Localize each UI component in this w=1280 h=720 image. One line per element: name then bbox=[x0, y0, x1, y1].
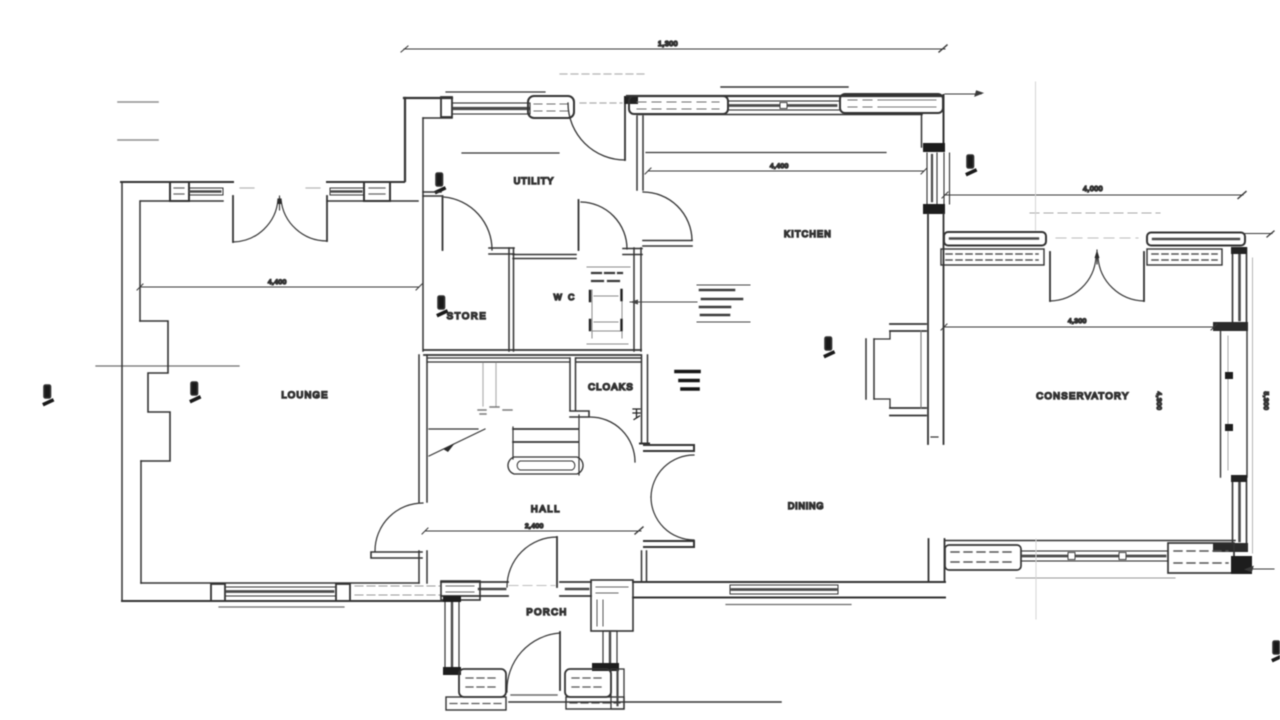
svg-text:DINING: DINING bbox=[788, 501, 824, 511]
svg-text:4,400: 4,400 bbox=[770, 163, 789, 170]
svg-text:5,300: 5,300 bbox=[1262, 392, 1269, 411]
svg-text:STORE: STORE bbox=[447, 311, 488, 322]
svg-text:1,300: 1,300 bbox=[658, 41, 678, 48]
svg-text:W C: W C bbox=[554, 292, 577, 302]
svg-text:CLOAKS: CLOAKS bbox=[588, 382, 634, 393]
svg-text:HALL: HALL bbox=[531, 504, 561, 515]
svg-text:4,300: 4,300 bbox=[1155, 392, 1162, 411]
svg-text:2,400: 2,400 bbox=[525, 523, 544, 530]
svg-text:LOUNGE: LOUNGE bbox=[281, 390, 328, 401]
svg-text:4,300: 4,300 bbox=[1068, 318, 1087, 325]
svg-text:4,000: 4,000 bbox=[1083, 186, 1103, 193]
svg-text:PORCH: PORCH bbox=[526, 607, 567, 618]
svg-text:4,400: 4,400 bbox=[268, 279, 287, 286]
svg-text:UTILITY: UTILITY bbox=[514, 176, 555, 186]
svg-text:CONSERVATORY: CONSERVATORY bbox=[1036, 391, 1129, 402]
svg-text:KITCHEN: KITCHEN bbox=[784, 229, 832, 239]
